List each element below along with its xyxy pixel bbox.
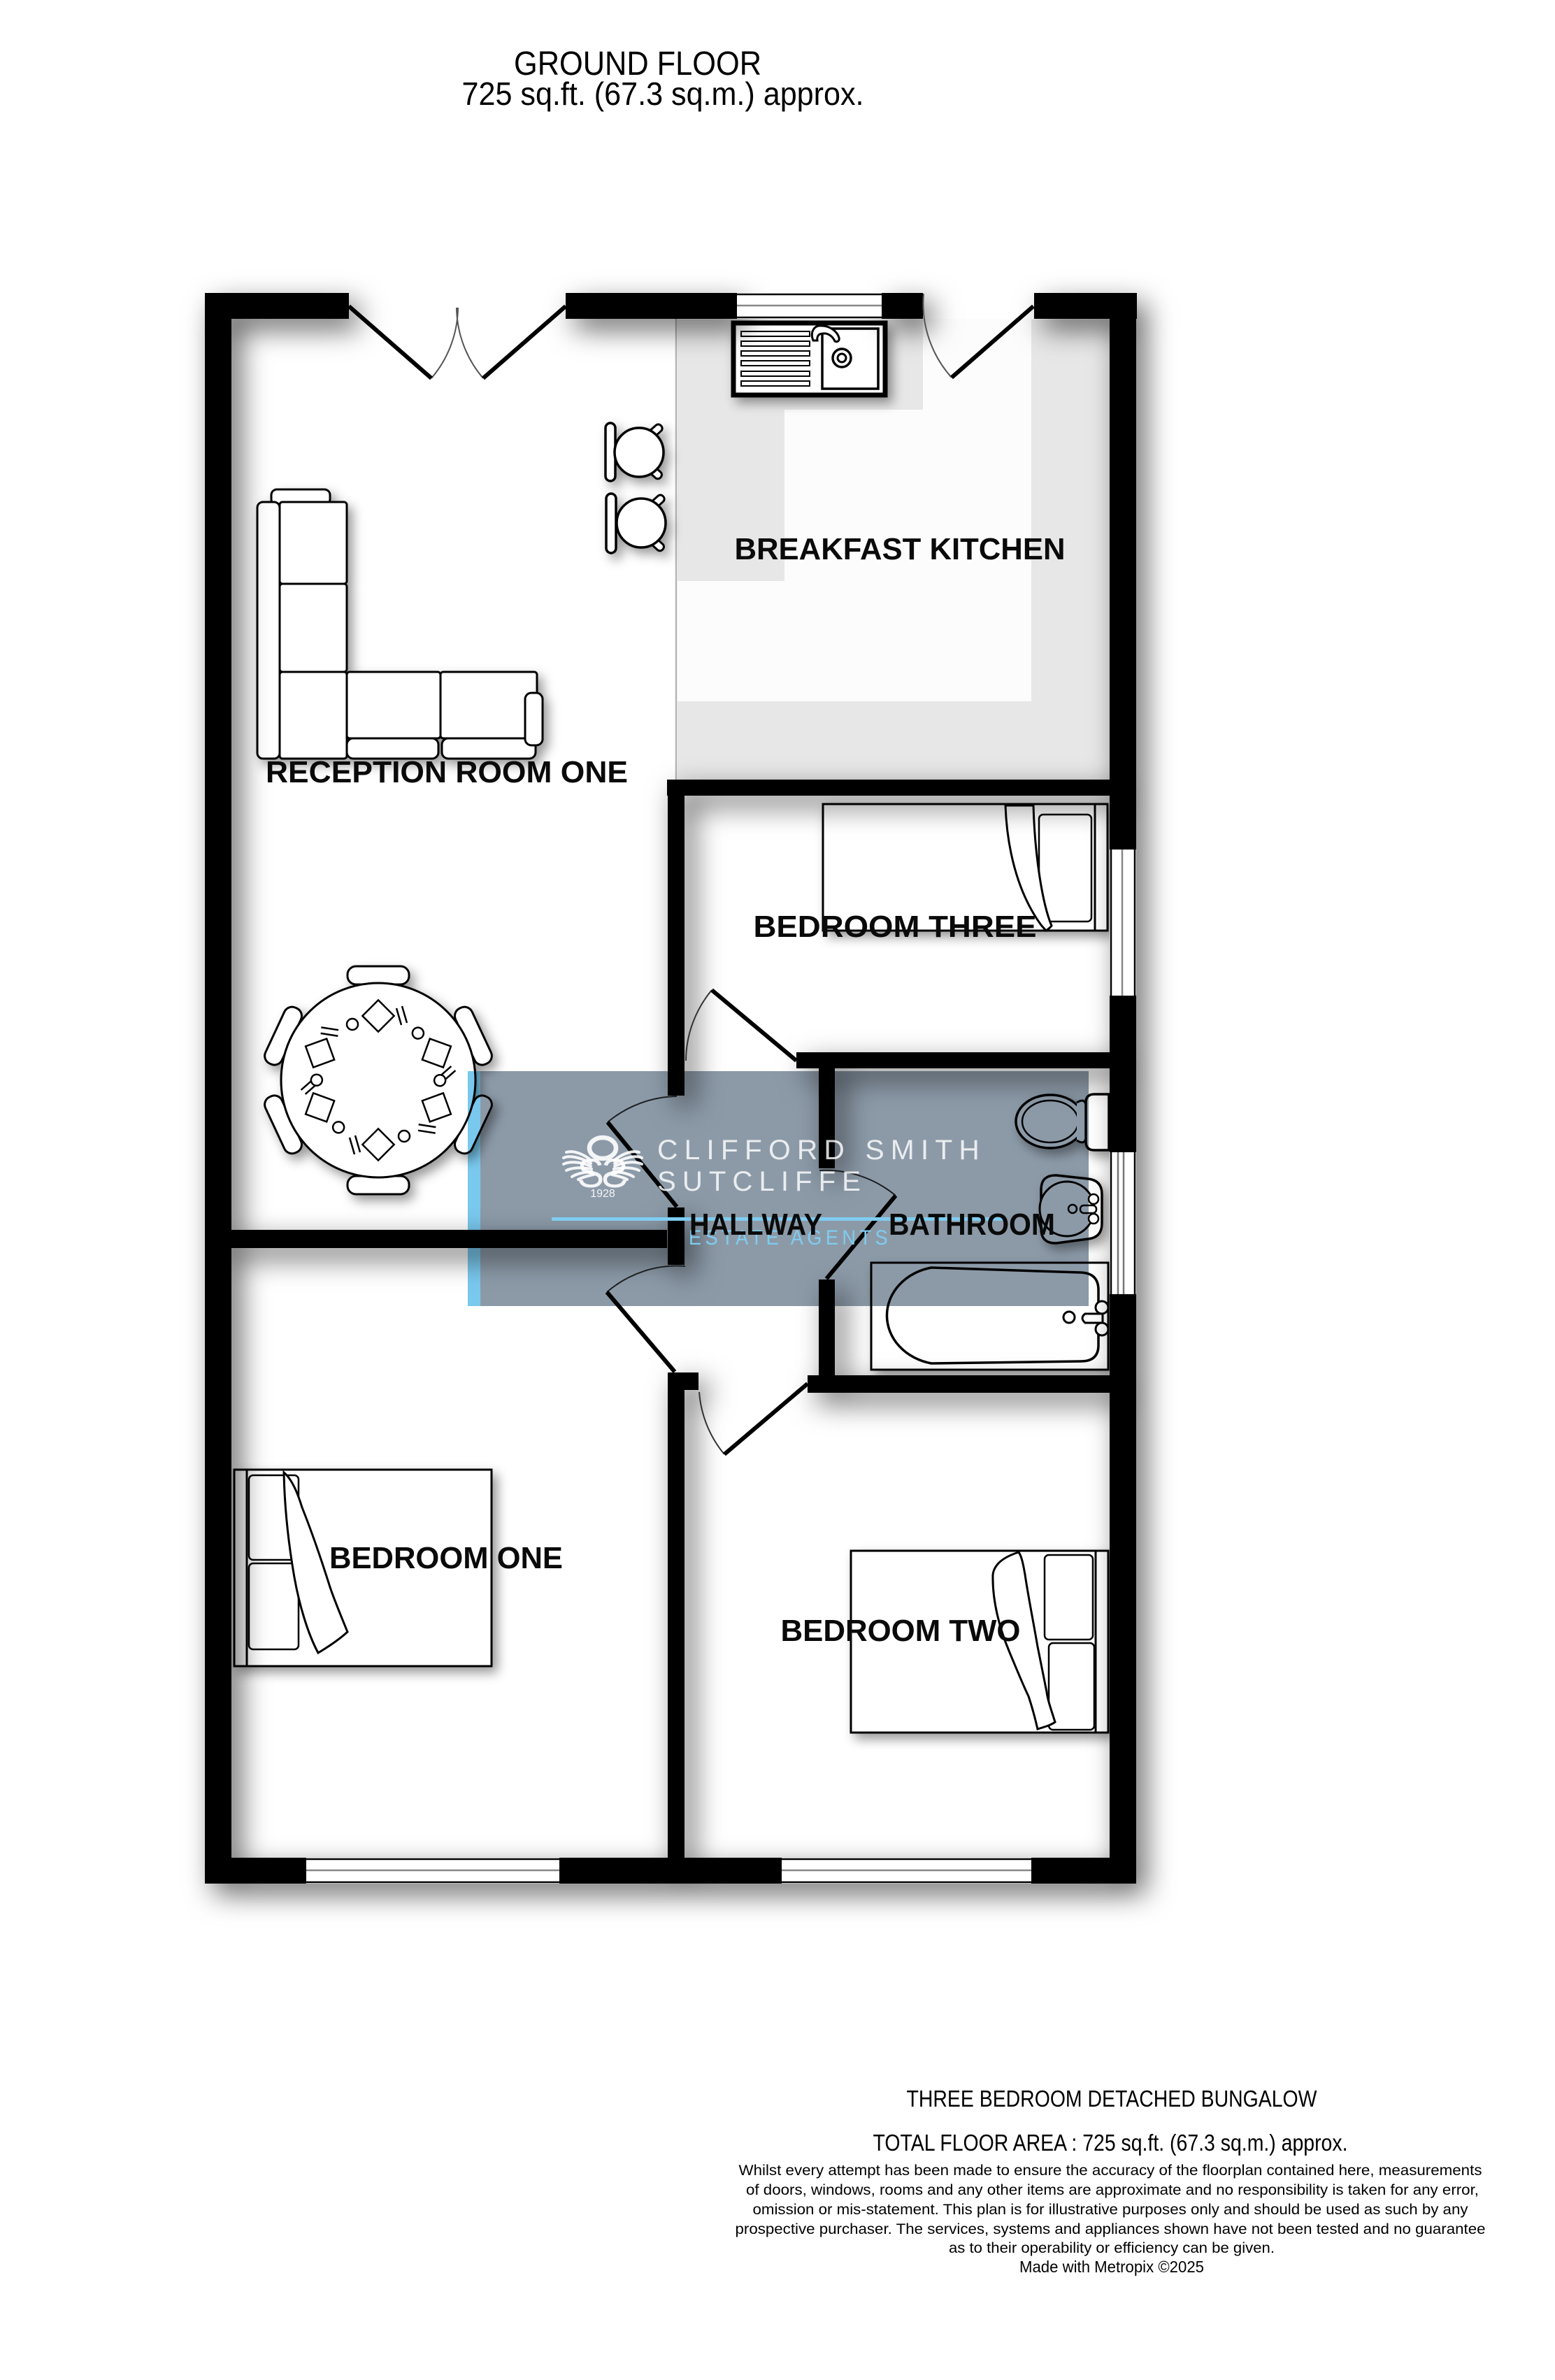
svg-text:BATHROOM: BATHROOM <box>889 1207 1055 1242</box>
svg-text:BEDROOM ONE: BEDROOM ONE <box>329 1541 563 1575</box>
svg-text:prospective purchaser. The ser: prospective purchaser. The services, sys… <box>736 2221 1486 2237</box>
svg-text:BEDROOM THREE: BEDROOM THREE <box>754 910 1037 944</box>
svg-text:HALLWAY: HALLWAY <box>689 1207 822 1242</box>
svg-text:BEDROOM TWO: BEDROOM TWO <box>781 1614 1021 1648</box>
svg-text:Made with Metropix ©2025: Made with Metropix ©2025 <box>1019 2258 1204 2276</box>
svg-text:Whilst every attempt has been: Whilst every attempt has been made to en… <box>739 2162 1482 2179</box>
svg-text:1928: 1928 <box>590 1188 615 1200</box>
svg-text:BREAKFAST KITCHEN: BREAKFAST KITCHEN <box>735 532 1066 566</box>
svg-text:omission or mis-statement. Thi: omission or mis-statement. This plan is … <box>753 2201 1468 2218</box>
svg-text:as to their operability or eff: as to their operability or efficiency ca… <box>949 2239 1275 2256</box>
svg-text:725 sq.ft. (67.3 sq.m.) approx: 725 sq.ft. (67.3 sq.m.) approx. <box>462 76 864 112</box>
svg-text:SUTCLIFFE: SUTCLIFFE <box>657 1166 867 1197</box>
svg-text:CLIFFORD SMITH: CLIFFORD SMITH <box>657 1135 986 1166</box>
svg-text:TOTAL FLOOR AREA : 725 sq.ft.: TOTAL FLOOR AREA : 725 sq.ft. (67.3 sq.m… <box>873 2130 1348 2156</box>
svg-text:of doors, windows, rooms and a: of doors, windows, rooms and any other i… <box>746 2181 1479 2198</box>
svg-text:THREE BEDROOM DETACHED BUNGALO: THREE BEDROOM DETACHED BUNGALOW <box>907 2086 1318 2112</box>
svg-text:RECEPTION ROOM ONE: RECEPTION ROOM ONE <box>266 755 628 789</box>
